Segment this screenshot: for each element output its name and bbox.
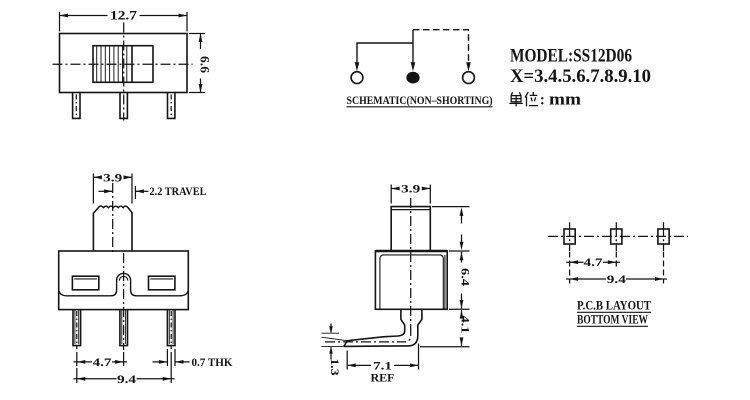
svg-text:REF: REF bbox=[371, 371, 395, 385]
svg-text:12.7: 12.7 bbox=[110, 9, 137, 23]
svg-text:X=3.4.5.6.7.8.9.10: X=3.4.5.6.7.8.9.10 bbox=[510, 66, 651, 87]
svg-text:2.2 TRAVEL: 2.2 TRAVEL bbox=[150, 186, 207, 198]
svg-text:4.7: 4.7 bbox=[584, 255, 603, 269]
svg-text:6.4: 6.4 bbox=[459, 268, 473, 286]
svg-text:mm: mm bbox=[549, 89, 581, 108]
svg-text:1.3: 1.3 bbox=[328, 359, 342, 376]
svg-text:0.7 THK: 0.7 THK bbox=[192, 357, 233, 369]
svg-text:4.1: 4.1 bbox=[459, 316, 473, 334]
svg-text:3.9: 3.9 bbox=[401, 182, 420, 196]
svg-text:3.9: 3.9 bbox=[103, 170, 122, 184]
svg-text:9.4: 9.4 bbox=[607, 272, 626, 286]
svg-text:6.6: 6.6 bbox=[198, 56, 212, 73]
svg-text:4.7: 4.7 bbox=[93, 355, 112, 369]
svg-text:9.4: 9.4 bbox=[117, 372, 136, 386]
svg-text:P.C.B LAYOUT: P.C.B LAYOUT bbox=[577, 299, 652, 313]
svg-text:SCHEMATIC(NON–SHORTING): SCHEMATIC(NON–SHORTING) bbox=[347, 95, 493, 107]
svg-text:BOTTOM VIEW: BOTTOM VIEW bbox=[577, 313, 648, 327]
svg-text:MODEL:SS12D06: MODEL:SS12D06 bbox=[510, 46, 632, 67]
